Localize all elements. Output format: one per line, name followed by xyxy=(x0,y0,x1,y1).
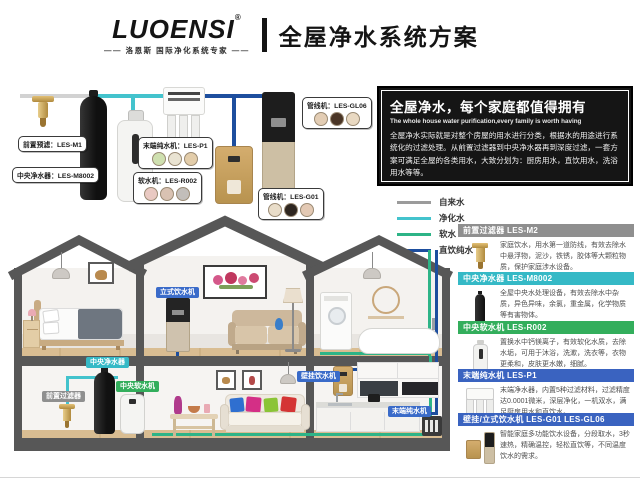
frame-art xyxy=(249,376,255,385)
bed-blanket xyxy=(78,309,122,339)
pillow-blue xyxy=(229,397,244,412)
table-leg xyxy=(173,419,176,436)
pendant-lamp xyxy=(363,252,381,279)
callout-softener: 软水机：LES-R002 xyxy=(133,172,202,204)
flower-art xyxy=(213,275,223,285)
usage-photo-icon xyxy=(284,203,298,217)
pillow-red xyxy=(280,396,297,413)
callout-text: 中央净水器：LES-M8002 xyxy=(17,173,94,180)
wall-dispenser-screen xyxy=(228,156,240,162)
deer-art xyxy=(95,270,107,280)
leaf-art xyxy=(219,285,253,289)
frame-art xyxy=(222,377,230,384)
flower-art xyxy=(238,276,247,285)
sink xyxy=(328,403,352,406)
prefilter-label: 前置过滤器 xyxy=(42,391,85,402)
table-lamp xyxy=(28,309,36,316)
table-top xyxy=(170,414,218,419)
usage-photo-icon xyxy=(168,152,182,166)
deer-picture-frame xyxy=(88,262,114,284)
callout-prefilter: 前置预滤：LES-M1 xyxy=(18,136,87,152)
wall-dispenser-label: 壁挂饮水机 xyxy=(297,371,340,382)
flower-art xyxy=(225,272,237,284)
callout-terminal-purifier: 末端纯水机：LES-P1 xyxy=(138,137,213,169)
floor-lamp xyxy=(283,288,303,352)
sofa-leg xyxy=(236,350,239,354)
kettle xyxy=(368,394,380,402)
prefilter-tip xyxy=(40,118,46,127)
bed-frame xyxy=(38,340,124,346)
callout-text: 管线机：LES-GL06 xyxy=(307,103,367,110)
ro-cartridge xyxy=(435,420,438,432)
pillow xyxy=(43,321,60,334)
usage-photo-icon xyxy=(176,187,190,201)
pink-cup xyxy=(204,404,210,413)
central-purifier-label: 中央净水器 xyxy=(86,357,129,368)
floor-lamp-pole xyxy=(292,303,294,349)
microwave xyxy=(402,382,438,395)
cabinet-door xyxy=(358,363,398,379)
callout-text: 软水机：LES-R002 xyxy=(138,178,197,185)
prefilter-body xyxy=(38,102,48,118)
sofa-base xyxy=(226,426,304,432)
cabinet-seam xyxy=(384,412,385,430)
usage-photo-icon xyxy=(314,112,328,126)
pillow-green xyxy=(263,397,278,412)
callout-text: 管线机：LES-G01 xyxy=(263,194,319,201)
usage-icons xyxy=(143,152,208,166)
ro-vent-slot xyxy=(168,98,200,101)
prefilter-house xyxy=(58,404,76,432)
wall-dispenser-device xyxy=(215,146,253,204)
central-purifier-house xyxy=(94,368,115,434)
flower-painting xyxy=(203,265,267,299)
pendant-lamp xyxy=(280,362,296,384)
callout-pipeline-stand: 管线机：LES-GL06 xyxy=(302,97,372,129)
pendant-lamp xyxy=(52,252,70,279)
label-text: 中央软水机 xyxy=(120,383,155,390)
usage-photo-icon xyxy=(152,152,166,166)
faucet-arm xyxy=(336,393,343,395)
usage-photo-icon xyxy=(160,187,174,201)
shelf xyxy=(368,316,404,319)
central-softener-label: 中央软水机 xyxy=(116,381,159,392)
softener-display xyxy=(129,399,136,404)
tank-body xyxy=(94,372,115,434)
nightstand xyxy=(23,320,40,348)
under-sink-ro xyxy=(422,416,442,436)
small-frame-plant xyxy=(242,370,262,390)
drawer-line xyxy=(27,329,38,330)
usage-photo-icon xyxy=(268,203,282,217)
prefilter-tip xyxy=(65,421,69,428)
usage-icons xyxy=(138,187,197,201)
blue-vase xyxy=(275,318,283,330)
ro-cartridge xyxy=(425,420,428,432)
callout-central-purifier: 中央净水器：LES-M8002 xyxy=(12,167,99,183)
central-softener-house xyxy=(120,394,145,434)
stand-dispenser-label: 立式饮水机 xyxy=(156,287,199,298)
callout-text: 前置预滤：LES-M1 xyxy=(23,142,82,149)
washer-door xyxy=(328,307,346,325)
standing-dispenser-panel xyxy=(262,92,295,142)
wall-dispenser-body xyxy=(215,146,253,204)
floor-lamp-shade xyxy=(283,288,303,303)
usage-icons xyxy=(263,203,319,217)
dispenser-spout xyxy=(172,310,184,315)
usage-photo-icon xyxy=(300,203,314,217)
callout-pipeline-wall: 管线机：LES-G01 xyxy=(258,188,324,220)
label-text: 末端纯水机 xyxy=(392,408,427,415)
usage-photo-icon xyxy=(144,187,158,201)
table-lamp-stem xyxy=(31,316,33,321)
round-mirror xyxy=(372,286,400,314)
bed xyxy=(34,300,126,350)
usage-photo-icon xyxy=(184,152,198,166)
tub-faucet xyxy=(432,318,435,330)
flower-vase xyxy=(174,396,182,414)
sofa-seat xyxy=(228,412,302,426)
table-leg xyxy=(212,419,215,436)
bathtub xyxy=(358,328,440,354)
label-text: 前置过滤器 xyxy=(46,393,81,400)
wall-dispenser-recess xyxy=(227,180,241,194)
fruit-bowl xyxy=(188,406,200,413)
label-text: 壁挂饮水机 xyxy=(301,373,336,380)
side-table xyxy=(170,404,218,436)
pillow-magenta xyxy=(245,396,261,412)
prefilter-device xyxy=(31,96,55,136)
cabinet-door xyxy=(398,363,439,379)
standing-dispenser-spout xyxy=(271,118,286,127)
stand-dispenser-house xyxy=(166,298,190,352)
table-shelf xyxy=(174,426,214,429)
bed-leg xyxy=(116,346,120,350)
prefilter-body xyxy=(63,409,71,421)
ro-cartridge xyxy=(430,420,433,432)
dispenser-recess xyxy=(339,384,347,392)
ro-vent-slot xyxy=(168,92,200,95)
usage-icons xyxy=(307,112,367,126)
lower-sofa xyxy=(220,394,310,436)
label-text: 中央净水器 xyxy=(90,359,125,366)
bed-leg xyxy=(42,346,46,350)
usage-photo-icon xyxy=(346,112,360,126)
sofa-cushion xyxy=(235,326,267,344)
usage-photo-icon xyxy=(330,112,344,126)
upper-cabinets xyxy=(357,362,439,398)
flower-art xyxy=(249,273,259,283)
callout-text: 末端纯水机：LES-P1 xyxy=(143,143,208,150)
dispenser-screen xyxy=(339,372,347,376)
washer-control-panel xyxy=(324,296,348,301)
washing-machine xyxy=(320,292,352,350)
floor-lamp-base xyxy=(285,349,301,352)
small-frame-deer xyxy=(216,370,236,390)
terminal-purifier-label: 末端纯水机 xyxy=(388,406,431,417)
poster-canvas: LUOENSI® —— 洛恩斯 国际净化系统专家 —— 全屋净水系统方案 全屋净… xyxy=(0,0,640,481)
label-text: 立式饮水机 xyxy=(160,289,195,296)
cabinet-seam xyxy=(350,412,351,430)
